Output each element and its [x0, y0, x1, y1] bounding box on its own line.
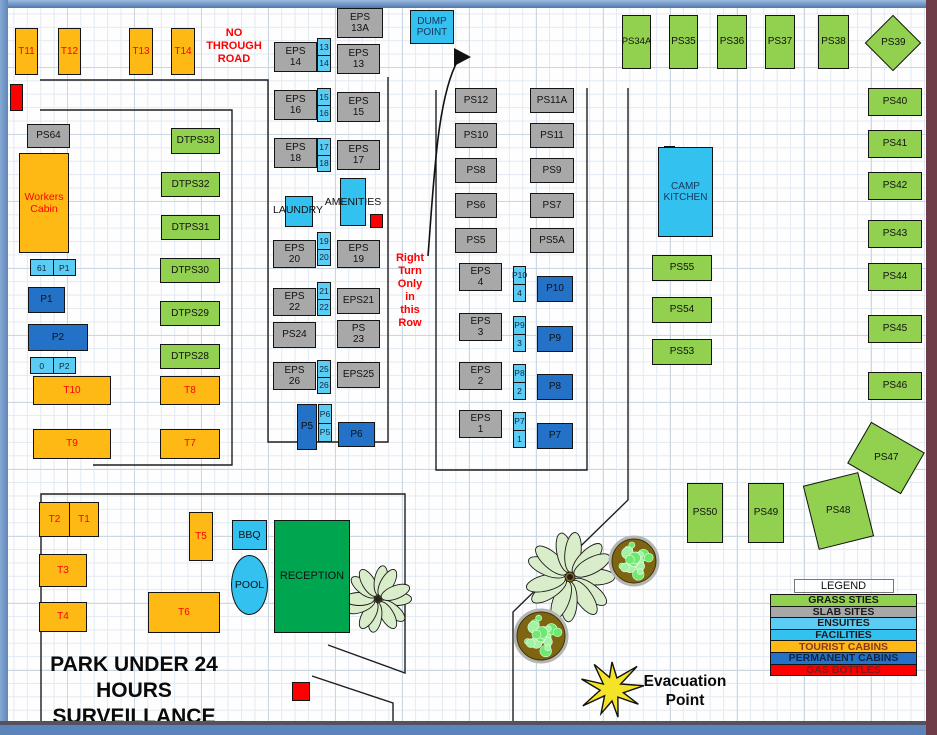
right-turn-only: Right Turn Only in this Row	[386, 252, 434, 330]
frame-border-left	[0, 0, 8, 735]
frame-border-bottom	[0, 721, 937, 735]
legend-title: LEGEND	[794, 579, 894, 593]
site-map-frame: T11T12T13T14Workers CabinT10T9T8T7T2T1T3…	[0, 0, 937, 735]
legend-row-gas-bottles: GAS BOTTLES	[770, 664, 917, 677]
surveillance-notice: PARK UNDER 24 HOURS SURVEILLANCE	[28, 652, 240, 730]
evacuation-point-label: Evacuation Point	[630, 672, 740, 710]
laundry-label: LAUNDRY	[270, 204, 326, 216]
frame-border-top	[0, 0, 937, 8]
no-through-road: NO THROUGH ROAD	[192, 27, 276, 66]
legend-rows: GRASS STIESSLAB SITESENSUITESFACILITIEST…	[770, 594, 917, 676]
amenities-label: AMENITIES	[321, 196, 385, 208]
frame-border-right	[926, 0, 937, 735]
legend-row-permanent-cabins: PERMANENT CABINS	[770, 652, 917, 665]
site-map-canvas: T11T12T13T14Workers CabinT10T9T8T7T2T1T3…	[0, 0, 937, 735]
legend: LEGEND GRASS STIESSLAB SITESENSUITESFACI…	[770, 579, 917, 735]
